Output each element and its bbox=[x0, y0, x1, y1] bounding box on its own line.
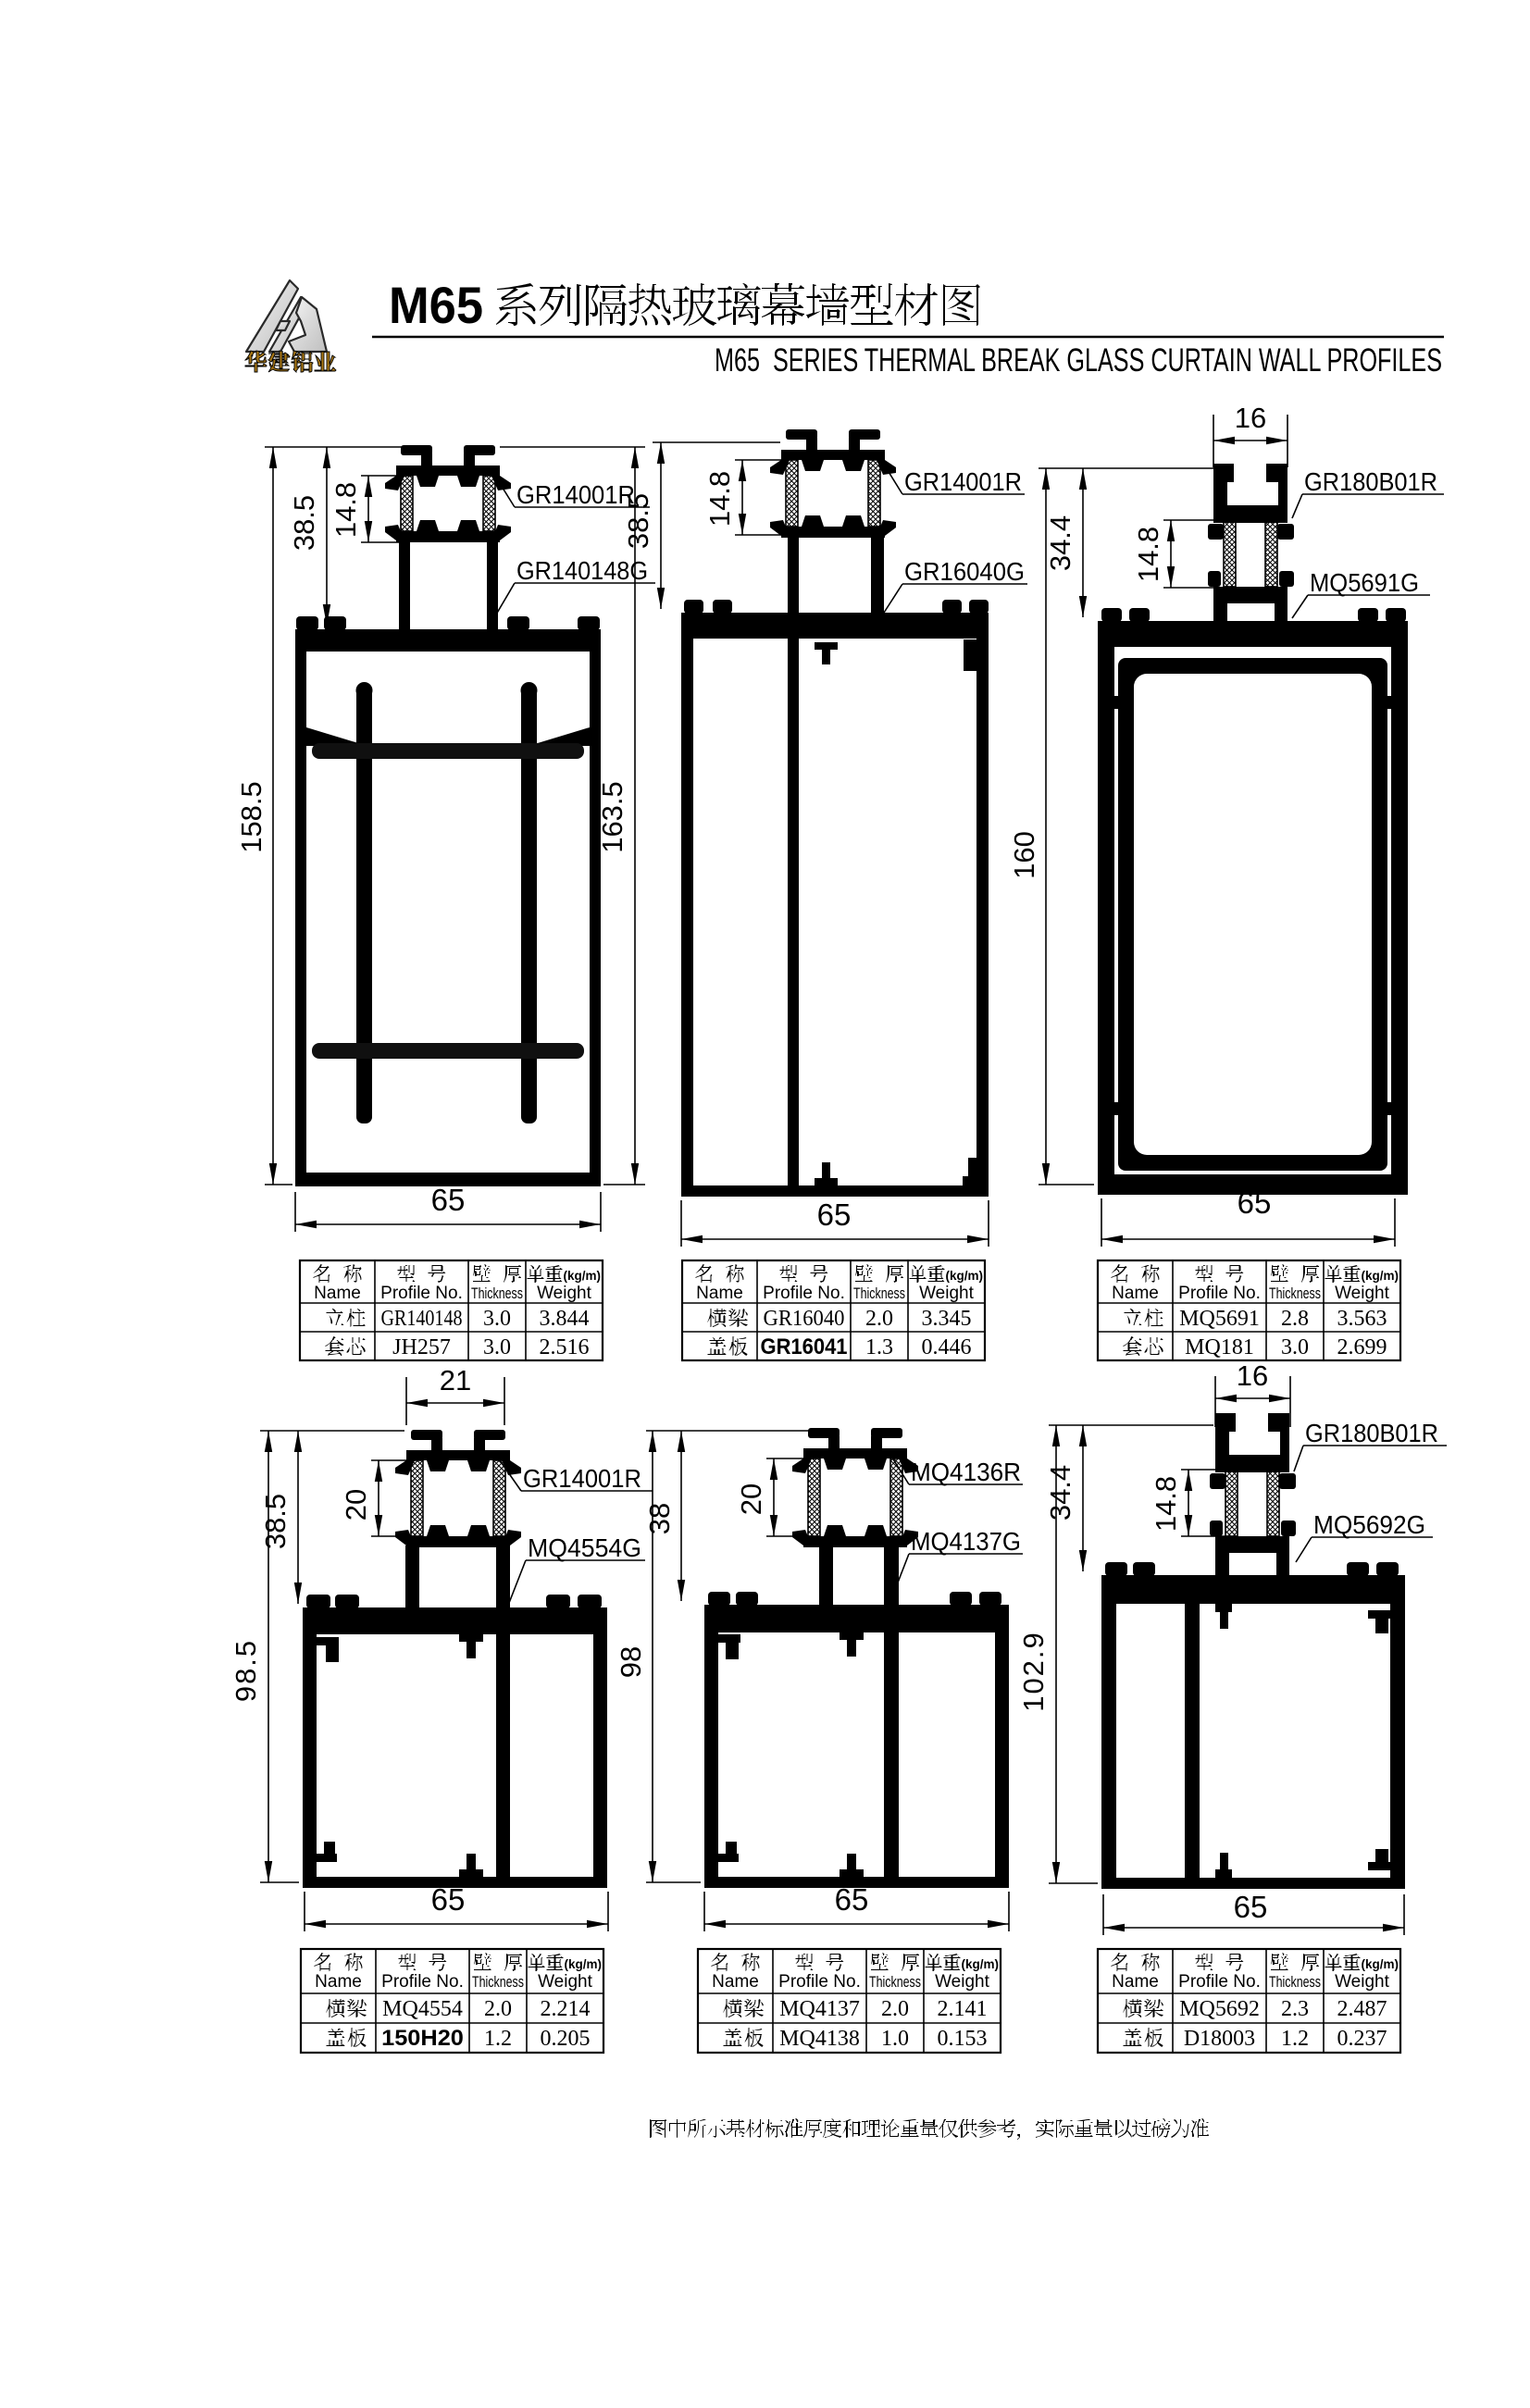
svg-text:98.5: 98.5 bbox=[230, 1639, 262, 1702]
svg-text:102.9: 102.9 bbox=[1017, 1631, 1050, 1712]
svg-text:3.0: 3.0 bbox=[483, 1307, 511, 1331]
svg-text:MQ4137: MQ4137 bbox=[779, 1997, 860, 2021]
svg-text:150H20: 150H20 bbox=[381, 2026, 464, 2051]
svg-text:Thickness: Thickness bbox=[472, 1973, 524, 1991]
svg-text:2.516: 2.516 bbox=[540, 1335, 590, 1359]
svg-text:(kg/m): (kg/m) bbox=[946, 1269, 984, 1283]
svg-text:2.8: 2.8 bbox=[1281, 1307, 1309, 1331]
svg-text:MQ5692: MQ5692 bbox=[1179, 1997, 1260, 2021]
svg-text:(kg/m): (kg/m) bbox=[565, 1957, 603, 1971]
svg-text:3.0: 3.0 bbox=[483, 1335, 511, 1359]
svg-text:Name: Name bbox=[314, 1284, 361, 1303]
svg-text:Weight: Weight bbox=[935, 1972, 990, 1992]
svg-text:GR14001R: GR14001R bbox=[523, 1464, 641, 1493]
svg-text:(kg/m): (kg/m) bbox=[962, 1957, 1000, 1971]
svg-text:GR180B01R: GR180B01R bbox=[1305, 1419, 1438, 1447]
svg-text:GR14001R: GR14001R bbox=[904, 467, 1022, 496]
svg-text:2.0: 2.0 bbox=[865, 1307, 893, 1331]
svg-text:MQ5692G: MQ5692G bbox=[1313, 1510, 1425, 1539]
svg-text:GR16040G: GR16040G bbox=[904, 557, 1025, 586]
svg-text:Weight: Weight bbox=[538, 1972, 593, 1992]
svg-text:20: 20 bbox=[735, 1483, 767, 1515]
svg-text:Profile No.: Profile No. bbox=[778, 1972, 861, 1992]
svg-text:(kg/m): (kg/m) bbox=[564, 1269, 602, 1283]
svg-text:Name: Name bbox=[315, 1972, 362, 1992]
svg-text:34.4: 34.4 bbox=[1044, 1465, 1076, 1521]
svg-text:38.5: 38.5 bbox=[288, 495, 320, 551]
svg-text:2.141: 2.141 bbox=[938, 1997, 988, 2021]
svg-text:GR180B01R: GR180B01R bbox=[1304, 467, 1437, 496]
svg-text:Weight: Weight bbox=[537, 1284, 592, 1303]
svg-text:Profile No.: Profile No. bbox=[381, 1972, 464, 1992]
svg-text:MQ5691G: MQ5691G bbox=[1310, 568, 1419, 597]
svg-text:GR140148G: GR140148G bbox=[516, 556, 648, 585]
svg-text:2.0: 2.0 bbox=[881, 1997, 909, 2021]
svg-text:0.205: 0.205 bbox=[541, 2027, 591, 2051]
svg-text:16: 16 bbox=[1235, 402, 1266, 434]
svg-text:0.237: 0.237 bbox=[1337, 2027, 1387, 2051]
svg-text:14.8: 14.8 bbox=[1150, 1476, 1182, 1532]
svg-text:GR14001R: GR14001R bbox=[516, 480, 635, 509]
svg-text:1.0: 1.0 bbox=[881, 2027, 909, 2051]
svg-text:163.5: 163.5 bbox=[596, 781, 628, 853]
svg-text:JH257: JH257 bbox=[392, 1335, 451, 1359]
svg-text:M65: M65 bbox=[389, 276, 483, 334]
svg-text:1.2: 1.2 bbox=[484, 2027, 512, 2051]
svg-text:2.214: 2.214 bbox=[541, 1997, 591, 2021]
svg-text:Weight: Weight bbox=[919, 1284, 975, 1303]
svg-text:Thickness: Thickness bbox=[1269, 1285, 1321, 1302]
svg-text:Name: Name bbox=[1112, 1284, 1159, 1303]
svg-text:65: 65 bbox=[835, 1882, 869, 1917]
svg-text:Weight: Weight bbox=[1335, 1972, 1390, 1992]
svg-text:MQ4137G: MQ4137G bbox=[911, 1527, 1021, 1556]
svg-text:M65 SERIES THERMAL BREAK GLAS: M65 SERIES THERMAL BREAK GLASS CURTAIN W… bbox=[715, 342, 1442, 379]
svg-text:(kg/m): (kg/m) bbox=[1362, 1269, 1399, 1283]
svg-text:D18003: D18003 bbox=[1184, 2027, 1255, 2051]
svg-text:65: 65 bbox=[431, 1183, 466, 1217]
svg-text:3.844: 3.844 bbox=[540, 1307, 590, 1331]
svg-text:0.153: 0.153 bbox=[938, 2027, 988, 2051]
svg-text:MQ4554G: MQ4554G bbox=[528, 1533, 641, 1562]
svg-text:Weight: Weight bbox=[1335, 1284, 1390, 1303]
svg-text:MQ4554: MQ4554 bbox=[382, 1997, 463, 2021]
svg-text:Profile No.: Profile No. bbox=[1178, 1972, 1261, 1992]
svg-text:GR140148: GR140148 bbox=[381, 1307, 463, 1331]
svg-text:Thickness: Thickness bbox=[471, 1285, 523, 1302]
svg-text:65: 65 bbox=[817, 1198, 852, 1232]
svg-text:MQ181: MQ181 bbox=[1185, 1335, 1254, 1359]
svg-text:21: 21 bbox=[440, 1364, 471, 1396]
svg-text:14.8: 14.8 bbox=[1132, 527, 1164, 582]
svg-text:2.3: 2.3 bbox=[1281, 1997, 1309, 2021]
svg-text:38.5: 38.5 bbox=[259, 1494, 292, 1549]
svg-text:GR16041: GR16041 bbox=[761, 1334, 848, 1359]
svg-text:GR16040: GR16040 bbox=[764, 1307, 845, 1331]
svg-text:3.0: 3.0 bbox=[1281, 1335, 1309, 1359]
svg-text:0.446: 0.446 bbox=[922, 1335, 972, 1359]
svg-text:MQ4138: MQ4138 bbox=[779, 2027, 860, 2051]
svg-text:65: 65 bbox=[1238, 1185, 1272, 1220]
svg-text:158.5: 158.5 bbox=[235, 781, 267, 853]
svg-text:Profile No.: Profile No. bbox=[763, 1284, 845, 1303]
svg-text:3.563: 3.563 bbox=[1337, 1307, 1387, 1331]
svg-text:1.2: 1.2 bbox=[1281, 2027, 1309, 2051]
svg-text:1.3: 1.3 bbox=[865, 1335, 893, 1359]
svg-text:Profile No.: Profile No. bbox=[1178, 1284, 1261, 1303]
svg-text:Name: Name bbox=[712, 1972, 759, 1992]
svg-text:(kg/m): (kg/m) bbox=[1362, 1957, 1399, 1971]
svg-text:Thickness: Thickness bbox=[853, 1285, 905, 1302]
svg-text:14.8: 14.8 bbox=[330, 482, 362, 538]
svg-text:38.5: 38.5 bbox=[622, 493, 654, 549]
svg-text:Name: Name bbox=[1112, 1972, 1159, 1992]
svg-text:MQ4136R: MQ4136R bbox=[911, 1458, 1021, 1486]
svg-text:14.8: 14.8 bbox=[703, 471, 736, 527]
svg-text:16: 16 bbox=[1237, 1359, 1268, 1392]
svg-text:Thickness: Thickness bbox=[869, 1973, 921, 1991]
svg-text:2.699: 2.699 bbox=[1337, 1335, 1387, 1359]
svg-text:2.487: 2.487 bbox=[1337, 1997, 1387, 2021]
svg-text:Thickness: Thickness bbox=[1269, 1973, 1321, 1991]
svg-text:34.4: 34.4 bbox=[1044, 515, 1076, 571]
svg-text:65: 65 bbox=[1234, 1890, 1268, 1924]
svg-text:65: 65 bbox=[431, 1882, 466, 1917]
svg-text:2.0: 2.0 bbox=[484, 1997, 512, 2021]
svg-text:38: 38 bbox=[643, 1503, 676, 1534]
svg-text:98: 98 bbox=[615, 1646, 647, 1678]
svg-text:20: 20 bbox=[340, 1489, 372, 1521]
svg-text:160: 160 bbox=[1008, 831, 1040, 879]
svg-text:Profile No.: Profile No. bbox=[380, 1284, 463, 1303]
svg-text:Name: Name bbox=[696, 1284, 743, 1303]
svg-text:3.345: 3.345 bbox=[922, 1307, 972, 1331]
svg-text:MQ5691: MQ5691 bbox=[1179, 1307, 1260, 1331]
